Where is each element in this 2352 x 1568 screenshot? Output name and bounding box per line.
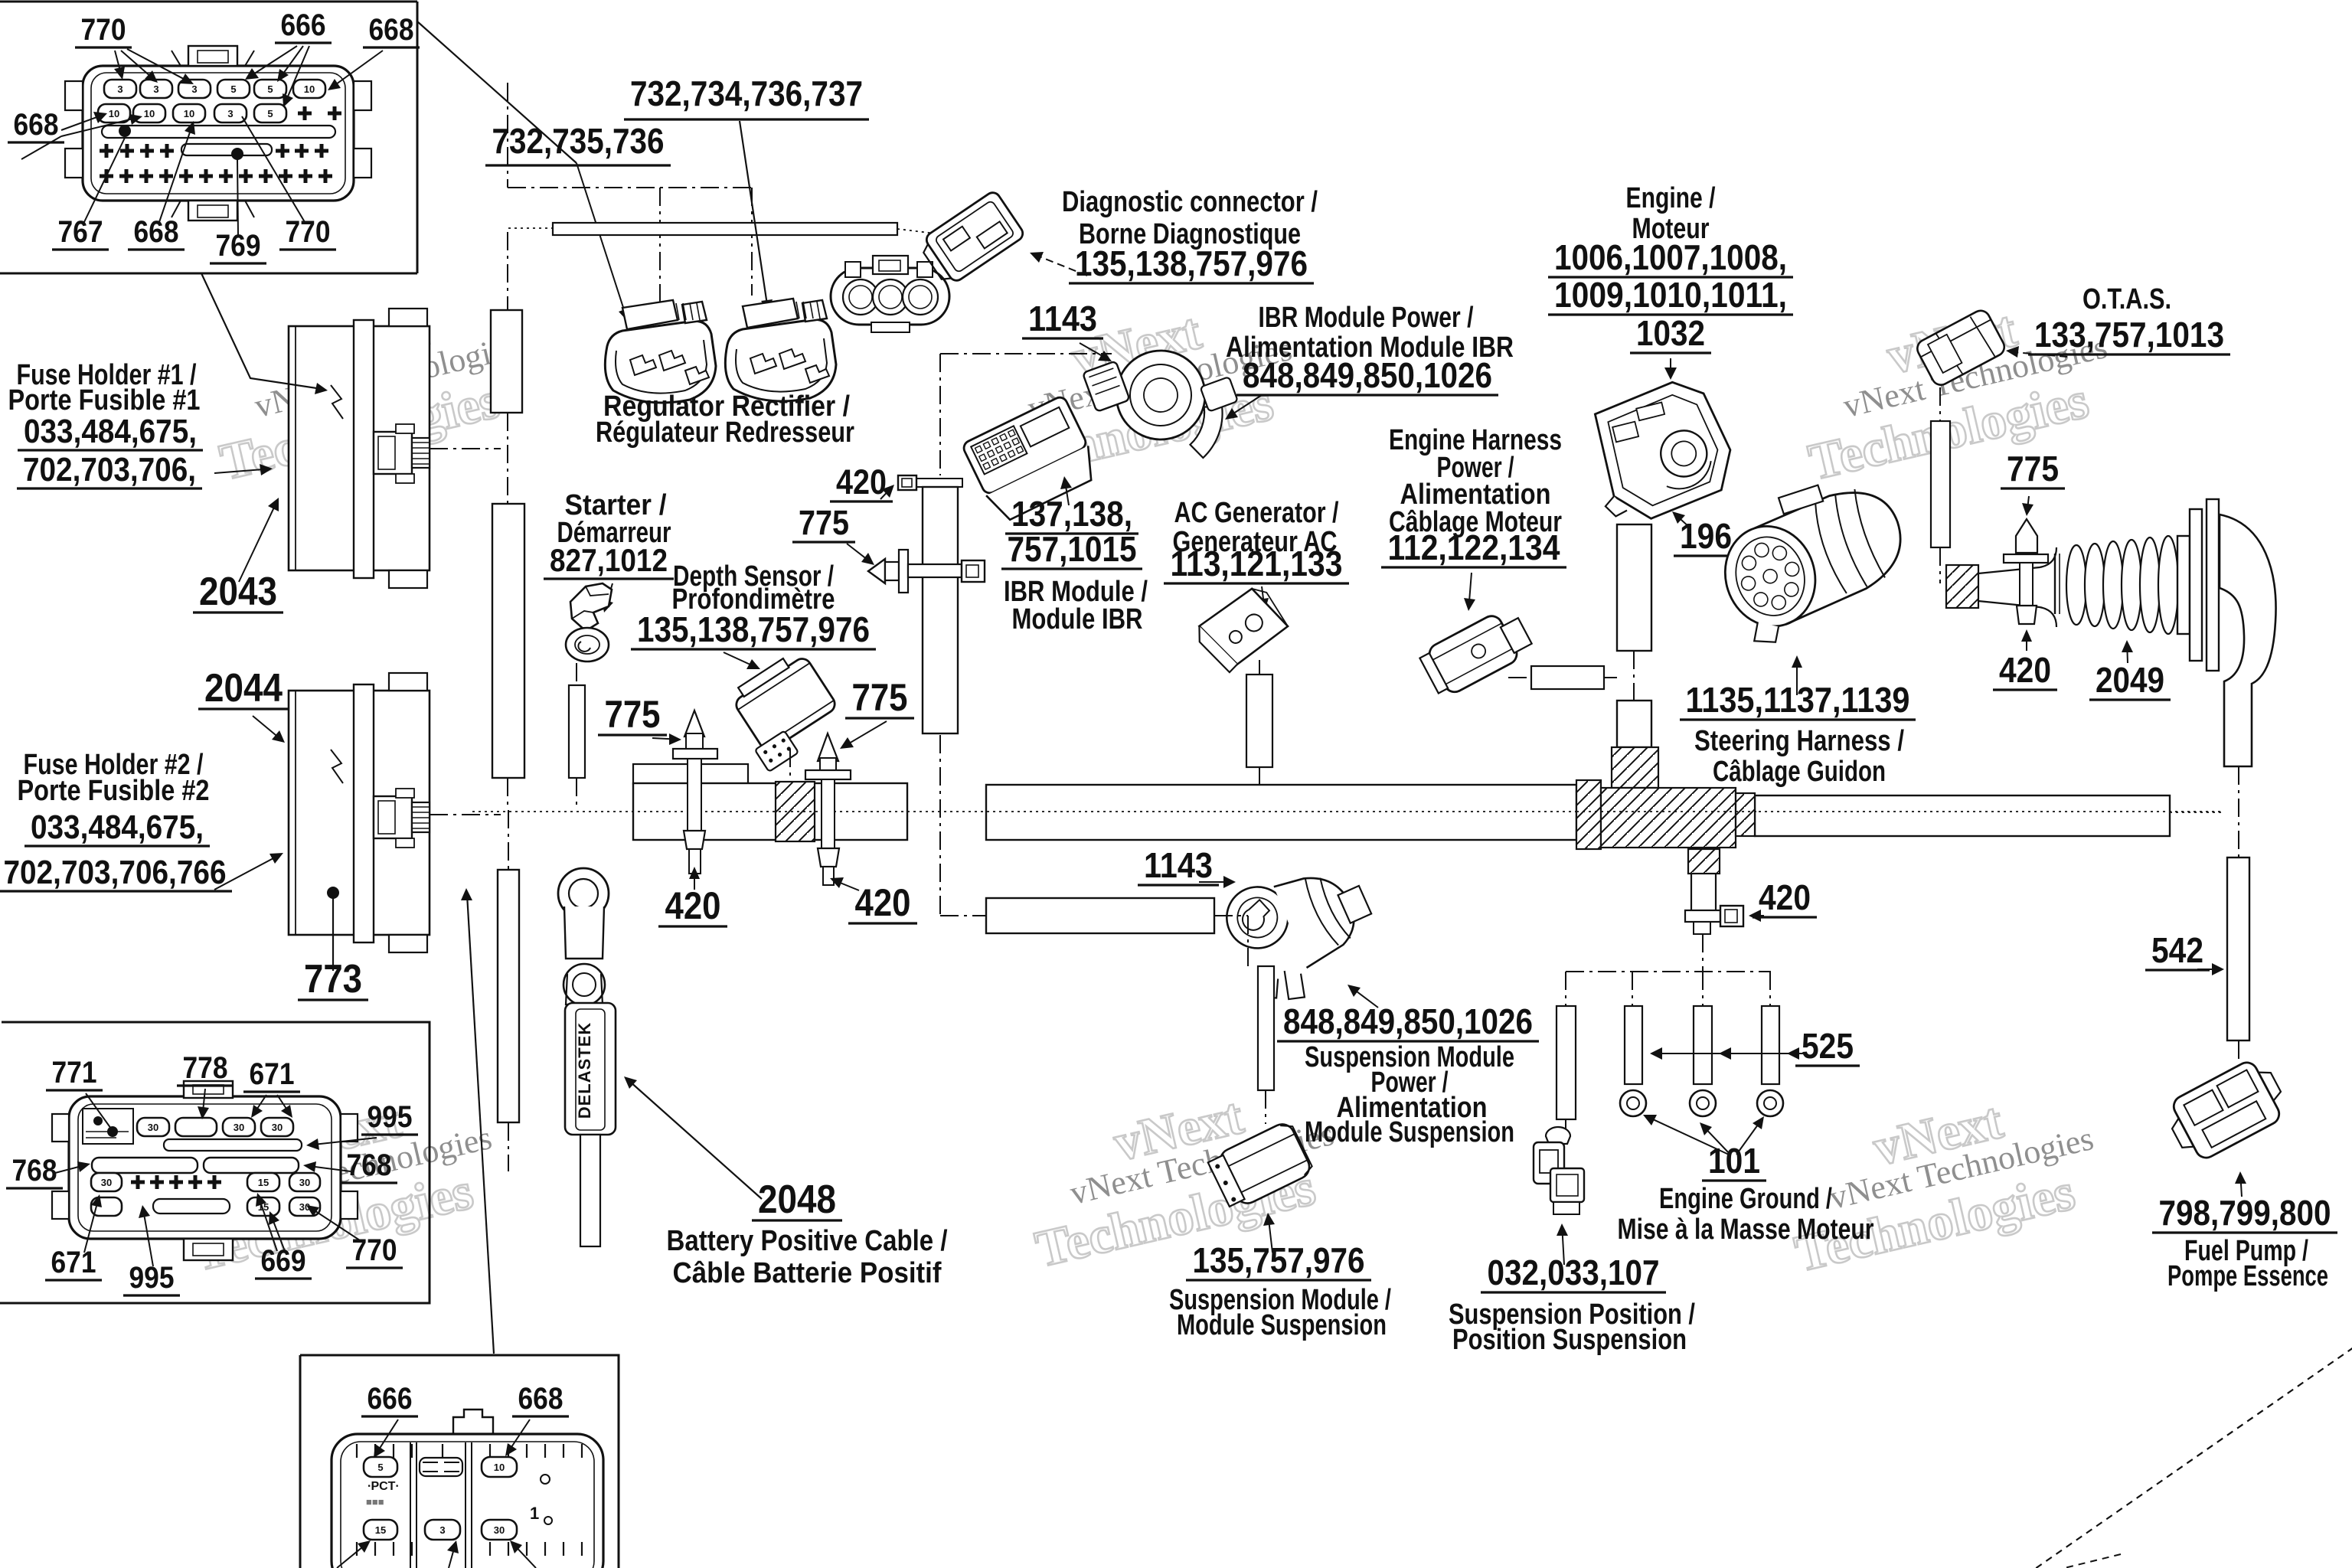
svg-text:5: 5 [267, 108, 273, 119]
svg-text:033,484,675,: 033,484,675, [24, 413, 197, 450]
svg-text:196: 196 [1680, 516, 1732, 556]
svg-text:995: 995 [129, 1261, 175, 1295]
svg-text:032,033,107: 032,033,107 [1488, 1253, 1660, 1292]
svg-text:768: 768 [347, 1148, 392, 1182]
svg-text:668: 668 [14, 108, 59, 142]
svg-text:Module Suspension: Module Suspension [1305, 1116, 1514, 1148]
svg-text:1143: 1143 [1144, 845, 1213, 885]
svg-text:30: 30 [101, 1177, 112, 1188]
svg-text:420: 420 [855, 881, 911, 924]
svg-text:30: 30 [299, 1177, 310, 1188]
svg-text:775: 775 [799, 503, 849, 542]
svg-text:848,849,850,1026: 848,849,850,1026 [1283, 1001, 1533, 1041]
svg-text:Porte Fusible #2: Porte Fusible #2 [18, 775, 210, 807]
svg-text:798,799,800: 798,799,800 [2159, 1193, 2331, 1233]
svg-text:135,757,976: 135,757,976 [1193, 1240, 1365, 1280]
svg-text:Engine Ground /: Engine Ground / [1659, 1183, 1832, 1215]
svg-text:Câblage Guidon: Câblage Guidon [1713, 756, 1886, 788]
svg-text:995: 995 [367, 1100, 413, 1134]
svg-text:∙PCT∙: ∙PCT∙ [367, 1480, 399, 1493]
svg-text:420: 420 [665, 884, 721, 927]
svg-text:Module Suspension: Module Suspension [1177, 1309, 1387, 1341]
svg-text:Position Suspension: Position Suspension [1452, 1324, 1687, 1356]
svg-text:1032: 1032 [1636, 313, 1705, 353]
svg-text:30: 30 [272, 1122, 283, 1133]
svg-text:Battery Positive Cable /: Battery Positive Cable / [667, 1225, 948, 1257]
svg-text:30: 30 [494, 1524, 505, 1536]
svg-text:Câble Batterie Positif: Câble Batterie Positif [673, 1257, 942, 1289]
svg-text:Steering Harness /: Steering Harness / [1694, 725, 1904, 757]
svg-text:770: 770 [286, 215, 331, 249]
svg-text:771: 771 [52, 1056, 97, 1089]
svg-text:669: 669 [261, 1244, 306, 1278]
svg-text:O.T.A.S.: O.T.A.S. [2082, 283, 2171, 315]
svg-text:668: 668 [518, 1382, 563, 1416]
svg-text:3: 3 [439, 1524, 445, 1536]
svg-text:Pompe Essence: Pompe Essence [2167, 1260, 2328, 1292]
svg-text:420: 420 [1759, 877, 1811, 917]
svg-text:3: 3 [117, 83, 122, 95]
svg-text:DELASTEK: DELASTEK [575, 1022, 594, 1119]
svg-text:668: 668 [369, 13, 414, 47]
svg-text:10: 10 [144, 108, 155, 119]
svg-text:702,703,706,766: 702,703,706,766 [4, 854, 227, 891]
svg-text:■■■: ■■■ [366, 1496, 384, 1508]
svg-text:135,138,757,976: 135,138,757,976 [1075, 243, 1308, 283]
svg-text:668: 668 [134, 215, 179, 249]
svg-text:Mise à la Masse Moteur: Mise à la Masse Moteur [1618, 1214, 1874, 1246]
svg-text:137,138,: 137,138, [1011, 494, 1132, 534]
svg-text:3: 3 [153, 83, 158, 95]
svg-text:420: 420 [1999, 650, 2051, 690]
svg-text:702,703,706,: 702,703,706, [23, 451, 196, 488]
svg-text:757,1015: 757,1015 [1008, 529, 1137, 569]
svg-text:2049: 2049 [2096, 660, 2164, 700]
svg-text:Porte Fusible #1: Porte Fusible #1 [8, 384, 201, 416]
svg-text:420: 420 [836, 462, 887, 501]
svg-text:770: 770 [352, 1233, 397, 1267]
svg-text:1009,1010,1011,: 1009,1010,1011, [1554, 275, 1787, 315]
svg-text:10: 10 [304, 83, 315, 95]
svg-text:671: 671 [250, 1057, 295, 1091]
svg-text:1: 1 [530, 1504, 539, 1523]
svg-text:15: 15 [258, 1177, 269, 1188]
svg-text:133,757,1013: 133,757,1013 [2034, 315, 2224, 354]
svg-text:5: 5 [377, 1462, 383, 1473]
svg-text:AC Generator /: AC Generator / [1174, 497, 1339, 529]
svg-text:671: 671 [51, 1246, 96, 1279]
svg-text:30: 30 [234, 1122, 244, 1133]
svg-text:775: 775 [2007, 449, 2059, 488]
svg-text:1143: 1143 [1028, 299, 1097, 338]
svg-text:732,735,736: 732,735,736 [492, 121, 665, 161]
svg-text:1006,1007,1008,: 1006,1007,1008, [1554, 237, 1787, 277]
svg-text:5: 5 [267, 83, 273, 95]
svg-text:10: 10 [184, 108, 194, 119]
svg-text:10: 10 [109, 108, 119, 119]
svg-text:827,1012: 827,1012 [550, 542, 668, 578]
svg-text:2044: 2044 [204, 666, 283, 710]
svg-text:775: 775 [852, 676, 908, 719]
svg-text:2043: 2043 [199, 570, 277, 614]
svg-text:3: 3 [227, 108, 233, 119]
svg-text:Engine /: Engine / [1626, 182, 1716, 214]
svg-text:768: 768 [12, 1154, 57, 1187]
svg-text:666: 666 [367, 1382, 413, 1416]
svg-text:IBR Module Power /: IBR Module Power / [1259, 302, 1474, 334]
svg-text:135,138,757,976: 135,138,757,976 [637, 609, 870, 649]
svg-text:5: 5 [230, 83, 236, 95]
svg-text:Module IBR: Module IBR [1012, 603, 1143, 635]
svg-text:542: 542 [2151, 930, 2203, 970]
svg-text:525: 525 [1802, 1026, 1854, 1066]
svg-text:775: 775 [605, 693, 661, 736]
svg-text:778: 778 [183, 1051, 228, 1085]
svg-text:033,484,675,: 033,484,675, [31, 808, 204, 846]
svg-text:10: 10 [494, 1462, 505, 1473]
svg-text:848,849,850,1026: 848,849,850,1026 [1243, 355, 1492, 395]
svg-text:113,121,133: 113,121,133 [1171, 544, 1343, 583]
svg-text:770: 770 [81, 13, 126, 47]
svg-text:Régulateur Redresseur: Régulateur Redresseur [596, 416, 854, 449]
svg-text:Diagnostic connector /: Diagnostic connector / [1062, 186, 1318, 218]
svg-text:732,734,736,737: 732,734,736,737 [630, 73, 863, 113]
svg-text:101: 101 [1708, 1141, 1760, 1181]
svg-text:112,122,134: 112,122,134 [1388, 528, 1560, 567]
svg-text:666: 666 [281, 8, 326, 42]
svg-text:15: 15 [375, 1524, 386, 1536]
svg-text:3: 3 [191, 83, 197, 95]
svg-text:767: 767 [58, 215, 103, 249]
svg-text:2048: 2048 [758, 1178, 836, 1222]
svg-text:30: 30 [148, 1122, 158, 1133]
